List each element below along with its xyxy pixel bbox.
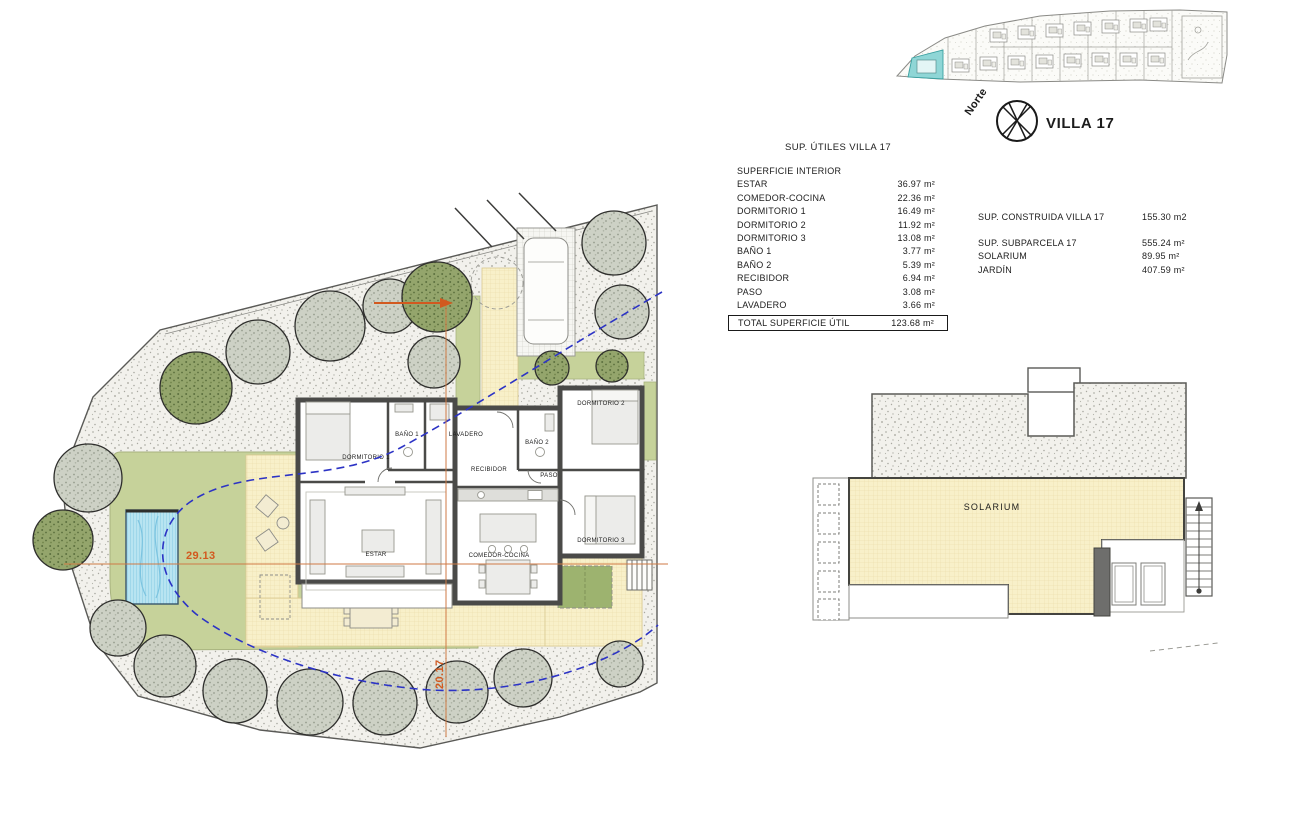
area-row: DORMITORIO 211.92 m² (728, 219, 948, 232)
total-useful-area: TOTAL SUPERFICIE ÚTIL123.68 m² (728, 315, 948, 331)
masterplan-outline (897, 10, 1227, 83)
area-row: PASO3.08 m² (728, 286, 948, 299)
built-area-row: SUP. CONSTRUIDA VILLA 17155.30 m2 (978, 211, 1240, 225)
parking-space (517, 228, 575, 356)
room-label-bano-2: BAÑO 2 (525, 439, 549, 446)
area-row: BAÑO 25.39 m² (728, 259, 948, 272)
room-label-dormitorio-3: DORMITORIO 3 (577, 538, 625, 544)
room-label-paso: PASO (540, 473, 557, 479)
pergola-posts (818, 484, 839, 620)
dimension-vertical: 20.17 (434, 659, 446, 689)
solarium-label: SOLARIUM (964, 502, 1021, 512)
garden-row: JARDÍN407.59 m² (978, 264, 1240, 278)
masterplan (897, 10, 1227, 83)
room-label-estar: ESTAR (365, 552, 386, 558)
north-label: Norte (963, 86, 990, 118)
room-label-dormitorio-1: DORMITORIO 1 (342, 455, 390, 461)
area-row: BAÑO 13.77 m² (728, 245, 948, 258)
area-row: ESTAR36.97 m² (728, 178, 948, 191)
roof-plan: SOLARIUM (813, 368, 1218, 651)
villa-title: VILLA 17 (1046, 115, 1114, 132)
architectural-plan-sheet: DORMITORIO 1 BAÑO 1 LAVADERO RECIBIDOR B… (0, 0, 1290, 840)
area-row: COMEDOR-COCINA22.36 m² (728, 192, 948, 205)
room-label-bano-1: BAÑO 1 (395, 431, 419, 438)
areas-section-label: SUPERFICIE INTERIOR (728, 165, 841, 178)
roof-gravel (872, 383, 1186, 478)
areas-table-title: SUP. ÚTILES VILLA 17 (728, 142, 948, 153)
room-label-recibidor: RECIBIDOR (471, 467, 507, 473)
area-row: DORMITORIO 116.49 m² (728, 205, 948, 218)
area-row: LAVADERO3.66 m² (728, 299, 948, 312)
useful-areas-table: SUP. ÚTILES VILLA 17 SUPERFICIE INTERIOR… (728, 142, 948, 331)
room-label-comedor: COMEDOR-COCINA (469, 553, 530, 559)
site-plan: DORMITORIO 1 BAÑO 1 LAVADERO RECIBIDOR B… (33, 193, 668, 748)
dimension-horizontal: 29.13 (186, 550, 216, 562)
area-row: DORMITORIO 313.08 m² (728, 232, 948, 245)
solarium-row: SOLARIUM89.95 m² (978, 250, 1240, 264)
roof-stairs (1186, 498, 1212, 596)
plan-drawing: DORMITORIO 1 BAÑO 1 LAVADERO RECIBIDOR B… (0, 0, 1290, 840)
room-label-dormitorio-2: DORMITORIO 2 (577, 401, 625, 407)
summary-areas-table: SUP. CONSTRUIDA VILLA 17155.30 m2 SUP. S… (978, 211, 1240, 277)
area-row: RECIBIDOR6.94 m² (728, 272, 948, 285)
compass-icon (997, 101, 1037, 141)
room-label-lavadero: LAVADERO (449, 432, 483, 438)
subparcel-row: SUP. SUBPARCELA 17555.24 m² (978, 237, 1240, 251)
